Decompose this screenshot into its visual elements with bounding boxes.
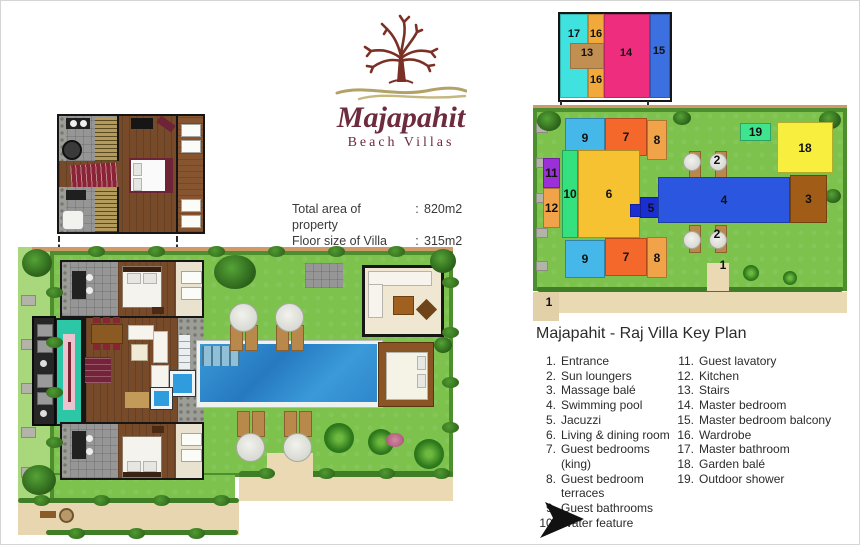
legend-item-label: Stairs xyxy=(699,383,730,398)
garden-bale xyxy=(362,265,444,337)
legend-item-number: 13. xyxy=(674,383,694,398)
keyplan-inset-label-15: 15 xyxy=(647,45,671,57)
keyplan-area-label-2: 2 xyxy=(705,153,729,167)
waves-icon xyxy=(335,82,467,102)
property-info: Total area of property : 820m2 Floor siz… xyxy=(292,201,487,249)
balcony-lounger xyxy=(181,140,201,153)
dining-chair xyxy=(93,317,100,323)
sink-icon xyxy=(80,120,87,127)
keyplan-block-12: 12 xyxy=(543,188,560,228)
vanity xyxy=(72,271,86,299)
legend-item-8: 8.Guest bedroom terraces xyxy=(536,472,674,501)
upper-floor-plan xyxy=(57,114,205,234)
legend-item-4: 4.Swimming pool xyxy=(536,398,674,413)
parasol-icon xyxy=(283,433,312,462)
terrace-lounger xyxy=(181,433,202,446)
bench xyxy=(152,426,164,433)
dining-chair xyxy=(93,344,100,350)
bottom-path xyxy=(533,292,847,313)
legend-item-number: 18. xyxy=(674,457,694,472)
fountain-icon xyxy=(59,508,74,523)
legend-item-number: 14. xyxy=(674,398,694,413)
keyplan-block-19: 19 xyxy=(740,123,771,141)
legend-item-number: 6. xyxy=(536,428,556,443)
legend-item-label: Jacuzzi xyxy=(561,413,601,428)
keyplan-area-label-1: 1 xyxy=(537,295,561,309)
white-sofa xyxy=(128,325,154,340)
wall xyxy=(117,187,119,232)
water-feature xyxy=(55,318,83,426)
keyplan-area-label-1: 1 xyxy=(711,258,735,272)
dining-chair xyxy=(103,344,110,350)
ottoman xyxy=(151,365,169,389)
tree xyxy=(825,189,841,203)
brand-name: Majapahit xyxy=(318,103,484,133)
keyplan-block-8: 8 xyxy=(647,120,667,160)
legend-column-2: 11.Guest lavatory12.Kitchen13.Stairs14.M… xyxy=(674,354,831,530)
rug xyxy=(125,392,149,408)
massage-bale xyxy=(378,342,434,407)
keyplan-block-4: 4 xyxy=(658,177,790,223)
legend-item-number: 2. xyxy=(536,369,556,384)
legend-item-label: Kitchen xyxy=(699,369,739,384)
tree xyxy=(537,111,561,131)
keyplan-block-3: 3 xyxy=(790,175,827,223)
brand-tagline: Beach Villas xyxy=(318,135,484,151)
bathroom-pebbles xyxy=(62,263,70,313)
tree xyxy=(434,337,452,353)
sink-icon xyxy=(86,287,93,294)
legend-item-label: Massage balé xyxy=(561,383,636,398)
bench xyxy=(156,116,175,133)
parasol-icon xyxy=(683,231,701,249)
tree xyxy=(430,249,456,273)
keyplan-block-7: 7 xyxy=(605,238,647,276)
legend-item-label: Sun loungers xyxy=(561,369,632,384)
property-area-row: Total area of property : 820m2 xyxy=(292,201,487,233)
parasol-icon xyxy=(275,303,304,332)
keyplan-site: 978111210654318199782211 xyxy=(533,103,849,321)
flower-bush xyxy=(386,433,404,447)
legend-item-5: 5.Jacuzzi xyxy=(536,413,674,428)
legend-title: Majapahit - Raj Villa Key Plan xyxy=(536,325,858,343)
legend-item-12: 12.Kitchen xyxy=(674,369,831,384)
legend-item-15: 15.Master bedroom balcony xyxy=(674,413,831,428)
sink-icon xyxy=(86,448,93,455)
jacuzzi xyxy=(170,371,195,396)
legend-item-18: 18.Garden balé xyxy=(674,457,831,472)
keyplan-upper-level: 171613141516 xyxy=(558,12,672,102)
vanity xyxy=(72,431,86,459)
keyplan-block-18: 18 xyxy=(777,122,833,173)
legend-item-label: Guest bedrooms (king) xyxy=(561,442,674,471)
master-bed xyxy=(129,158,173,193)
maroon-sofa xyxy=(85,357,111,383)
tree xyxy=(22,249,52,277)
keyplan-area-label-2: 2 xyxy=(705,227,729,241)
keyplan-block-6: 6 xyxy=(578,150,640,238)
legend-item-label: Master bedroom balcony xyxy=(699,413,831,428)
tree-icon xyxy=(359,6,443,84)
keyplan-inset-label-17: 17 xyxy=(562,28,586,40)
legend-item-17: 17.Master bathroom xyxy=(674,442,831,457)
keyplan-legend: Majapahit - Raj Villa Key Plan 1.Entranc… xyxy=(536,325,858,530)
legend-item-label: Master bathroom xyxy=(699,442,790,457)
balcony-lounger xyxy=(181,199,201,212)
bathtub-icon xyxy=(62,210,84,230)
separator: : xyxy=(410,201,424,233)
keyplan-block-9: 9 xyxy=(565,240,605,278)
legend-item-16: 16.Wardrobe xyxy=(674,428,831,443)
dining-chair xyxy=(103,317,110,323)
dresser xyxy=(131,118,153,129)
terrace-lounger xyxy=(181,271,202,284)
palm-tree xyxy=(324,423,354,453)
dining-table xyxy=(91,324,123,344)
legend-item-number: 12. xyxy=(674,369,694,384)
legend-item-number: 16. xyxy=(674,428,694,443)
legend-item-6: 6.Living & dining room xyxy=(536,428,674,443)
sink-icon xyxy=(86,274,93,281)
north-arrow-icon xyxy=(540,502,584,545)
bench xyxy=(152,307,164,314)
legend-item-label: Swimming pool xyxy=(561,398,642,413)
shower-icon xyxy=(62,140,82,160)
legend-item-14: 14.Master bedroom xyxy=(674,398,831,413)
balcony-lounger xyxy=(181,124,201,137)
vanity xyxy=(66,190,86,200)
ground-floor-site-plan xyxy=(18,247,455,537)
palm-tree xyxy=(743,265,759,281)
floorplan-page: Majapahit Beach Villas Total area of pro… xyxy=(0,0,860,545)
hedge-row xyxy=(18,498,239,503)
keyplan-block-11: 11 xyxy=(543,158,560,188)
parasol-icon xyxy=(683,153,701,171)
legend-item-number: 5. xyxy=(536,413,556,428)
wardrobe xyxy=(95,117,117,161)
terrace-lounger xyxy=(181,287,202,300)
bathroom-pebbles xyxy=(62,427,70,477)
dining-chair xyxy=(113,344,120,350)
outdoor-shower-pad xyxy=(305,263,343,288)
brand-logo: Majapahit Beach Villas xyxy=(318,6,484,151)
dining-chair xyxy=(113,317,120,323)
balcony-lounger xyxy=(181,215,201,228)
legend-item-label: Guest bedroom terraces xyxy=(561,472,674,501)
legend-columns: 1.Entrance2.Sun loungers3.Massage balé4.… xyxy=(536,354,858,530)
white-sofa xyxy=(153,331,168,363)
palm-tree xyxy=(414,439,444,469)
legend-item-number: 4. xyxy=(536,398,556,413)
legend-item-number: 19. xyxy=(674,472,694,487)
legend-item-number: 7. xyxy=(536,442,556,471)
tree xyxy=(673,111,691,125)
legend-item-11: 11.Guest lavatory xyxy=(674,354,831,369)
legend-item-7: 7.Guest bedrooms (king) xyxy=(536,442,674,471)
keyplan-inset-label-13: 13 xyxy=(575,47,599,59)
guest-bed xyxy=(122,436,162,478)
legend-item-label: Living & dining room xyxy=(561,428,670,443)
legend-item-number: 17. xyxy=(674,442,694,457)
legend-item-19: 19.Outdoor shower xyxy=(674,472,831,487)
entry-path xyxy=(239,477,453,501)
jacuzzi-step xyxy=(151,388,172,409)
legend-item-number: 15. xyxy=(674,413,694,428)
legend-item-2: 2.Sun loungers xyxy=(536,369,674,384)
coffee-table xyxy=(131,344,148,361)
legend-item-label: Garden balé xyxy=(699,457,765,472)
keyplan-inset-label-16: 16 xyxy=(584,74,608,86)
sink-icon xyxy=(86,435,93,442)
terrace-lounger xyxy=(181,449,202,462)
flower-bush xyxy=(214,255,256,289)
kitchen xyxy=(32,316,56,426)
property-area-value: 820m2 xyxy=(424,201,462,233)
guest-bed xyxy=(122,266,162,308)
parasol-icon xyxy=(236,433,265,462)
legend-item-number: 3. xyxy=(536,383,556,398)
legend-item-number: 11. xyxy=(674,354,694,369)
keyplan-block-10: 10 xyxy=(562,150,578,238)
property-area-label: Total area of property xyxy=(292,201,410,233)
keyplan-inset-label-16: 16 xyxy=(584,28,608,40)
legend-item-3: 3.Massage balé xyxy=(536,383,674,398)
keyplan-inset-label-14: 14 xyxy=(614,47,638,59)
keyplan-block-8: 8 xyxy=(647,237,667,278)
legend-item-label: Guest lavatory xyxy=(699,354,776,369)
parasol-icon xyxy=(229,303,258,332)
wardrobe xyxy=(95,188,117,232)
legend-item-number: 8. xyxy=(536,472,556,501)
wall xyxy=(117,116,119,161)
legend-item-1: 1.Entrance xyxy=(536,354,674,369)
legend-item-number: 1. xyxy=(536,354,556,369)
path-ornament xyxy=(40,511,56,518)
legend-item-label: Wardrobe xyxy=(699,428,751,443)
tree xyxy=(22,465,56,495)
legend-item-13: 13.Stairs xyxy=(674,383,831,398)
palm-tree xyxy=(783,271,797,285)
legend-item-label: Outdoor shower xyxy=(699,472,784,487)
legend-item-label: Entrance xyxy=(561,354,609,369)
legend-item-label: Master bedroom xyxy=(699,398,786,413)
sink-icon xyxy=(70,120,77,127)
